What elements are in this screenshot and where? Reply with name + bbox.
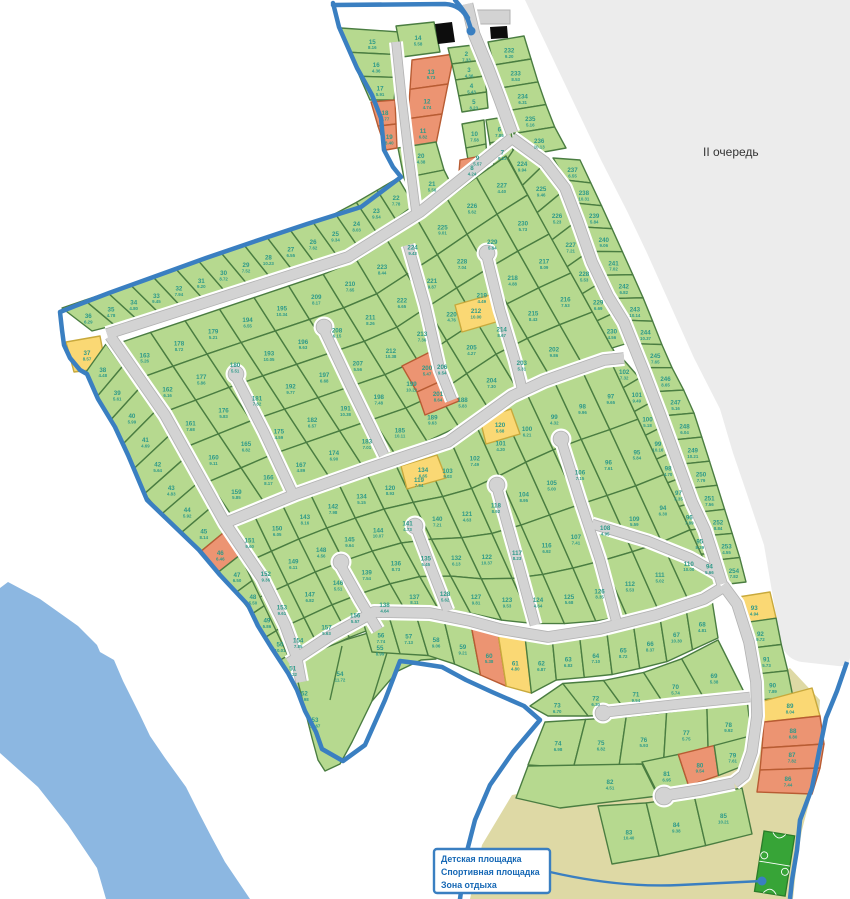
svg-text:6.11: 6.11 [289, 565, 298, 570]
svg-text:5.58: 5.58 [414, 41, 423, 46]
svg-text:6.31: 6.31 [518, 100, 527, 105]
svg-text:5.31: 5.31 [518, 367, 527, 372]
svg-text:5.73: 5.73 [762, 663, 771, 668]
svg-text:6.82: 6.82 [620, 290, 629, 295]
svg-text:10.37: 10.37 [640, 336, 652, 341]
svg-text:Зона отдыха: Зона отдыха [441, 880, 497, 890]
svg-text:8.35: 8.35 [595, 595, 604, 600]
svg-text:7.65: 7.65 [346, 288, 355, 293]
svg-text:4.64: 4.64 [380, 608, 389, 613]
svg-text:8.39: 8.39 [696, 545, 705, 550]
svg-text:9.54: 9.54 [696, 769, 705, 774]
svg-text:6.13: 6.13 [452, 561, 461, 566]
svg-text:5.83: 5.83 [458, 403, 467, 408]
svg-text:10.37: 10.37 [481, 561, 493, 566]
svg-text:5.38: 5.38 [485, 659, 494, 664]
svg-text:8.67: 8.67 [497, 333, 506, 338]
svg-text:5.86: 5.86 [263, 624, 272, 629]
svg-text:6.57: 6.57 [308, 423, 317, 428]
svg-text:6.69: 6.69 [594, 306, 603, 311]
svg-text:6.95: 6.95 [662, 777, 671, 782]
svg-text:5.73: 5.73 [519, 227, 528, 232]
svg-text:4.48: 4.48 [99, 373, 108, 378]
svg-text:9.22: 9.22 [498, 156, 507, 161]
svg-text:4.20: 4.20 [496, 447, 505, 452]
svg-text:8.26: 8.26 [366, 321, 375, 326]
svg-text:6.55: 6.55 [287, 253, 296, 258]
svg-text:4.32: 4.32 [550, 420, 559, 425]
svg-text:5.84: 5.84 [633, 456, 642, 461]
svg-text:5.68: 5.68 [565, 600, 574, 605]
svg-text:6.83: 6.83 [564, 663, 573, 668]
svg-text:10.38: 10.38 [340, 412, 352, 417]
svg-text:4.49: 4.49 [478, 299, 487, 304]
svg-text:9.45: 9.45 [152, 299, 161, 304]
svg-text:8.65: 8.65 [661, 383, 670, 388]
svg-text:7.74: 7.74 [377, 639, 386, 644]
svg-text:9.21: 9.21 [459, 651, 468, 656]
svg-text:4.83: 4.83 [167, 491, 176, 496]
svg-text:5.93: 5.93 [640, 743, 649, 748]
svg-text:5.53: 5.53 [580, 277, 589, 282]
svg-text:5.84: 5.84 [488, 246, 497, 251]
svg-text:9.81: 9.81 [472, 601, 481, 606]
svg-text:6.15: 6.15 [333, 334, 342, 339]
svg-text:4.24: 4.24 [468, 171, 477, 176]
svg-text:10.05: 10.05 [264, 357, 276, 362]
svg-text:4.69: 4.69 [141, 443, 150, 448]
svg-text:5.02: 5.02 [656, 579, 665, 584]
svg-text:10.34: 10.34 [276, 312, 288, 317]
svg-text:6.98: 6.98 [554, 747, 563, 752]
svg-text:4.94: 4.94 [750, 611, 759, 616]
svg-text:4.73: 4.73 [403, 527, 412, 532]
svg-text:7.30: 7.30 [487, 384, 496, 389]
svg-text:7.89: 7.89 [768, 689, 777, 694]
svg-text:10.00: 10.00 [471, 314, 483, 319]
svg-text:6.46: 6.46 [216, 557, 225, 562]
svg-text:9.38: 9.38 [672, 829, 681, 834]
svg-text:9.43: 9.43 [408, 251, 417, 256]
svg-text:9.01: 9.01 [438, 231, 447, 236]
svg-text:9.11: 9.11 [209, 461, 218, 466]
svg-text:4.59: 4.59 [275, 435, 284, 440]
svg-text:5.62: 5.62 [468, 210, 477, 215]
svg-text:9.61: 9.61 [278, 611, 287, 616]
svg-text:Спортивная площадка: Спортивная площадка [441, 867, 540, 877]
svg-text:7.33: 7.33 [462, 57, 471, 62]
svg-text:8.23: 8.23 [470, 105, 479, 110]
svg-text:9.20: 9.20 [197, 284, 206, 289]
svg-text:11.72: 11.72 [335, 677, 346, 682]
svg-text:7.78: 7.78 [392, 201, 401, 206]
svg-text:6.55: 6.55 [568, 174, 577, 179]
svg-text:4.38: 4.38 [417, 159, 426, 164]
svg-text:7.41: 7.41 [572, 541, 581, 546]
svg-text:5.16: 5.16 [526, 122, 535, 127]
svg-text:7.82: 7.82 [253, 402, 262, 407]
svg-text:8.92: 8.92 [492, 509, 501, 514]
svg-text:6.65: 6.65 [419, 473, 428, 478]
svg-text:9.87: 9.87 [428, 284, 437, 289]
svg-text:9.53: 9.53 [503, 604, 512, 609]
svg-text:5.47: 5.47 [423, 371, 432, 376]
svg-text:5.51: 5.51 [334, 586, 343, 591]
svg-text:7.85: 7.85 [495, 133, 504, 138]
svg-text:5.59: 5.59 [630, 522, 639, 527]
svg-text:6.30: 6.30 [659, 511, 668, 516]
svg-text:5.43: 5.43 [467, 89, 476, 94]
svg-text:7.68: 7.68 [186, 427, 195, 432]
svg-text:6.65: 6.65 [398, 304, 407, 309]
svg-text:7.79: 7.79 [697, 478, 706, 483]
svg-text:9.54: 9.54 [372, 215, 381, 220]
svg-text:9.94: 9.94 [518, 167, 527, 172]
svg-text:7.89: 7.89 [685, 521, 694, 526]
svg-text:4.63: 4.63 [463, 517, 472, 522]
svg-text:7.21: 7.21 [433, 522, 442, 527]
svg-text:8.95: 8.95 [520, 498, 529, 503]
svg-text:10.21: 10.21 [718, 819, 730, 824]
svg-text:8.03: 8.03 [352, 227, 361, 232]
svg-text:5.62: 5.62 [441, 598, 450, 603]
svg-text:6.16: 6.16 [163, 393, 172, 398]
svg-text:9.54: 9.54 [438, 370, 447, 375]
svg-text:8.17: 8.17 [264, 481, 273, 486]
svg-text:10.30: 10.30 [671, 639, 683, 644]
svg-text:8.09: 8.09 [540, 265, 549, 270]
svg-text:5.57: 5.57 [473, 161, 482, 166]
svg-text:6.82: 6.82 [242, 448, 251, 453]
svg-text:5.56: 5.56 [354, 367, 363, 372]
svg-text:6.05: 6.05 [273, 532, 282, 537]
svg-text:8.14: 8.14 [200, 535, 209, 540]
svg-text:4.70: 4.70 [664, 472, 673, 477]
svg-text:10.16: 10.16 [652, 447, 664, 452]
svg-text:5.68: 5.68 [496, 428, 505, 433]
svg-text:4.89: 4.89 [297, 468, 306, 473]
svg-text:9.36: 9.36 [262, 578, 271, 583]
svg-text:II очередь: II очередь [703, 145, 759, 159]
svg-text:9.96: 9.96 [578, 410, 587, 415]
svg-text:7.44: 7.44 [784, 782, 793, 787]
svg-text:8.64: 8.64 [434, 397, 443, 402]
svg-text:5.18: 5.18 [643, 423, 652, 428]
svg-text:7.56: 7.56 [705, 502, 714, 507]
svg-text:8.72: 8.72 [175, 347, 184, 352]
svg-text:7.53: 7.53 [561, 303, 570, 308]
svg-text:4.36: 4.36 [372, 69, 381, 74]
svg-text:8.04: 8.04 [786, 709, 795, 714]
svg-text:8.43: 8.43 [529, 317, 538, 322]
svg-text:9.49: 9.49 [633, 398, 642, 403]
svg-text:5.92: 5.92 [183, 513, 192, 518]
svg-text:10.31: 10.31 [578, 196, 590, 201]
svg-text:4.27: 4.27 [467, 351, 476, 356]
svg-text:9.72: 9.72 [756, 637, 765, 642]
svg-text:7.82: 7.82 [730, 574, 739, 579]
svg-text:9.46: 9.46 [537, 192, 546, 197]
svg-text:7.32: 7.32 [620, 375, 629, 380]
svg-text:7.54: 7.54 [415, 483, 424, 488]
svg-text:4.40: 4.40 [498, 189, 507, 194]
svg-text:5.56: 5.56 [428, 187, 437, 192]
svg-text:6.55: 6.55 [243, 323, 252, 328]
svg-text:9.54: 9.54 [632, 698, 641, 703]
svg-text:5.16: 5.16 [671, 406, 680, 411]
svg-text:4.78: 4.78 [107, 313, 116, 318]
svg-text:5.57: 5.57 [351, 619, 360, 624]
svg-text:8.16: 8.16 [368, 45, 377, 50]
svg-text:5.53: 5.53 [626, 587, 635, 592]
svg-text:8.23: 8.23 [513, 556, 522, 561]
svg-text:4.81: 4.81 [698, 628, 707, 633]
svg-text:7.36: 7.36 [418, 337, 427, 342]
svg-text:4.36: 4.36 [465, 73, 474, 78]
svg-text:4.74: 4.74 [423, 105, 432, 110]
svg-text:4.55: 4.55 [722, 550, 731, 555]
svg-text:6.80: 6.80 [789, 734, 798, 739]
svg-text:9.60: 9.60 [245, 544, 254, 549]
svg-text:7.01: 7.01 [363, 445, 372, 450]
svg-text:6.82: 6.82 [597, 747, 606, 752]
svg-text:5.84: 5.84 [590, 220, 599, 225]
svg-text:6.04: 6.04 [680, 430, 689, 435]
svg-text:5.61: 5.61 [113, 396, 122, 401]
svg-text:10.07: 10.07 [373, 534, 385, 539]
svg-text:6.82: 6.82 [419, 135, 428, 140]
svg-text:5.85: 5.85 [232, 495, 241, 500]
svg-text:5.35: 5.35 [674, 496, 683, 501]
svg-text:9.06: 9.06 [600, 243, 609, 248]
svg-text:10.22: 10.22 [406, 388, 418, 393]
svg-text:10.13: 10.13 [534, 145, 546, 150]
svg-text:7.15: 7.15 [576, 476, 585, 481]
svg-text:7.58: 7.58 [470, 137, 479, 142]
svg-text:6.30: 6.30 [591, 702, 600, 707]
svg-text:6.87: 6.87 [537, 667, 546, 672]
svg-text:7.82: 7.82 [788, 758, 797, 763]
svg-text:4.64: 4.64 [534, 603, 543, 608]
svg-text:8.11: 8.11 [410, 600, 419, 605]
svg-text:5.83: 5.83 [219, 414, 228, 419]
svg-text:5.51: 5.51 [231, 368, 240, 373]
svg-text:6.29: 6.29 [84, 320, 93, 325]
svg-text:7.98: 7.98 [329, 510, 338, 515]
svg-text:10.23: 10.23 [263, 261, 275, 266]
svg-text:6.90: 6.90 [330, 457, 339, 462]
svg-text:8.57: 8.57 [83, 356, 92, 361]
svg-text:7.61: 7.61 [728, 759, 737, 764]
svg-text:5.38: 5.38 [710, 680, 719, 685]
svg-text:5.91: 5.91 [376, 92, 385, 97]
svg-text:5.63: 5.63 [322, 631, 331, 636]
svg-text:7.02: 7.02 [609, 267, 618, 272]
svg-text:5.86: 5.86 [197, 380, 206, 385]
svg-text:8.40: 8.40 [385, 140, 394, 145]
svg-text:7.65: 7.65 [651, 359, 660, 364]
svg-text:7.62: 7.62 [309, 245, 318, 250]
svg-text:8.99: 8.99 [376, 651, 385, 656]
svg-text:9.34: 9.34 [331, 238, 340, 243]
svg-text:7.61: 7.61 [604, 466, 613, 471]
svg-text:6.82: 6.82 [306, 598, 315, 603]
svg-text:8.93: 8.93 [386, 491, 395, 496]
svg-text:5.66: 5.66 [705, 570, 714, 575]
svg-text:4.76: 4.76 [447, 318, 456, 323]
svg-text:4.56: 4.56 [317, 553, 326, 558]
svg-text:6.70: 6.70 [553, 709, 562, 714]
svg-text:8.17: 8.17 [312, 300, 321, 305]
svg-text:7.10: 7.10 [592, 659, 601, 664]
svg-text:5.00: 5.00 [547, 486, 556, 491]
svg-text:10.40: 10.40 [623, 836, 635, 841]
svg-text:10.14: 10.14 [629, 313, 641, 318]
svg-text:4.56: 4.56 [608, 335, 617, 340]
svg-text:8.72: 8.72 [619, 654, 628, 659]
svg-text:6.92: 6.92 [542, 549, 551, 554]
svg-text:7.21: 7.21 [566, 249, 575, 254]
svg-text:9.03: 9.03 [443, 474, 452, 479]
svg-text:8.73: 8.73 [392, 567, 401, 572]
svg-text:5.99: 5.99 [128, 420, 137, 425]
svg-text:5.64: 5.64 [153, 468, 162, 473]
svg-text:8.16: 8.16 [301, 520, 310, 525]
svg-text:9.92: 9.92 [724, 728, 733, 733]
svg-text:9.77: 9.77 [286, 390, 295, 395]
svg-text:8.53: 8.53 [511, 77, 520, 82]
svg-text:7.48: 7.48 [375, 400, 384, 405]
svg-text:10.21: 10.21 [687, 454, 699, 459]
svg-text:9.64: 9.64 [345, 543, 354, 548]
svg-text:7.54: 7.54 [362, 576, 371, 581]
svg-text:9.86: 9.86 [550, 353, 559, 358]
svg-text:9.63: 9.63 [428, 421, 437, 426]
svg-text:4.80: 4.80 [129, 306, 138, 311]
svg-text:7.13: 7.13 [404, 640, 413, 645]
svg-text:5.15: 5.15 [357, 500, 366, 505]
svg-text:4.88: 4.88 [508, 281, 517, 286]
svg-text:8.37: 8.37 [646, 647, 655, 652]
svg-text:Детская площадка: Детская площадка [441, 854, 522, 864]
svg-text:6.50: 6.50 [233, 578, 242, 583]
svg-text:6.21: 6.21 [523, 433, 532, 438]
svg-text:5.74: 5.74 [671, 690, 680, 695]
svg-text:9.06: 9.06 [432, 644, 441, 649]
svg-text:10.00: 10.00 [683, 567, 695, 572]
svg-text:9.73: 9.73 [427, 75, 436, 80]
svg-text:4.80: 4.80 [511, 667, 520, 672]
svg-text:9.20: 9.20 [505, 54, 514, 59]
svg-text:7.94: 7.94 [175, 292, 184, 297]
svg-text:10.11: 10.11 [395, 434, 406, 439]
svg-text:5.21: 5.21 [209, 335, 218, 340]
svg-text:8.84: 8.84 [714, 526, 723, 531]
svg-text:5.23: 5.23 [553, 220, 562, 225]
svg-text:9.65: 9.65 [607, 400, 616, 405]
svg-text:8.72: 8.72 [219, 276, 228, 281]
svg-text:7.49: 7.49 [471, 462, 480, 467]
svg-text:8.44: 8.44 [378, 271, 387, 276]
svg-text:9.63: 9.63 [299, 345, 308, 350]
svg-text:7.04: 7.04 [458, 265, 467, 270]
svg-text:6.68: 6.68 [320, 379, 329, 384]
svg-text:7.85: 7.85 [294, 644, 303, 649]
svg-text:5.26: 5.26 [140, 359, 149, 364]
svg-text:5.75: 5.75 [682, 737, 691, 742]
svg-text:4.95: 4.95 [601, 532, 610, 537]
svg-text:4.51: 4.51 [606, 785, 615, 790]
svg-text:5.45: 5.45 [422, 562, 431, 567]
svg-text:7.52: 7.52 [242, 269, 251, 274]
svg-text:10.38: 10.38 [385, 354, 397, 359]
